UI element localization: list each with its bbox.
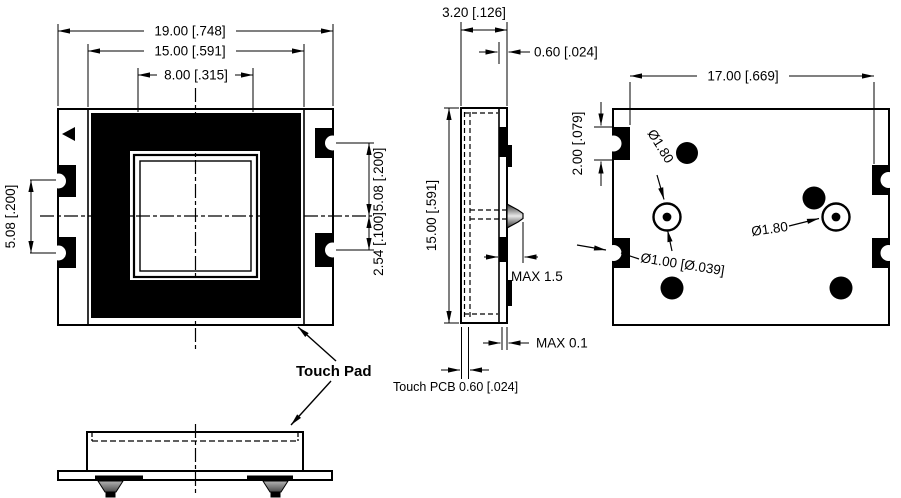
castellation-notch [881,172,897,188]
front-right-pitch-upper-label: 5.08 [.200] [371,148,386,212]
side-bump-max-label: MAX 1.5 [511,269,563,284]
plated-hole-center [663,213,672,222]
back-solder-dot [803,187,826,210]
profile-pad-bar [95,476,143,482]
back-solder-dot [676,142,698,164]
back-solder-dot [830,277,853,300]
touch-pad-leader-down [291,381,331,425]
technical-drawing-touch-pad: 19.00 [.748] 15.00 [.591] 8.00 [.315] 5.… [0,0,901,498]
front-view: 19.00 [.748] 15.00 [.591] 8.00 [.315] 5.… [3,23,386,425]
front-body-width-label: 15.00 [.591] [154,44,225,59]
back-width-label: 17.00 [.669] [707,69,778,84]
front-left-pitch-label: 5.08 [.200] [3,185,18,249]
drawing-canvas: 19.00 [.748] 15.00 [.591] 8.00 [.315] 5.… [0,0,901,498]
back-solder-dot [661,277,684,300]
solder-foot [263,481,288,492]
profile-pad-bar [247,476,293,482]
castellation-notch [606,136,622,152]
side-pad-nub [507,145,512,167]
front-window-width-label: 8.00 [.315] [164,68,228,83]
touch-pad-label: Touch Pad [296,363,372,380]
solder-foot-tip [271,492,281,498]
solder-foot [98,481,123,492]
side-touch-pcb-label: Touch PCB 0.60 [.024] [393,380,518,394]
side-protrusion-max-label: MAX 0.1 [536,336,588,351]
touch-pad-leader-up [298,327,336,361]
bottom-profile-view [58,424,332,498]
side-pad-strip [499,237,507,262]
side-cone-bump [507,204,523,228]
side-pcb-top-label: 0.60 [.024] [534,45,598,60]
back-view: 17.00 [.669] 2.00 [.079] Ø1.80 Ø1.00 [Ø.… [570,68,897,325]
solder-foot-tip [106,492,116,498]
side-pad-strip [499,127,507,157]
castellation-notch [606,245,622,261]
castellation-notch [51,174,66,189]
side-height-label: 15.00 [.591] [424,180,439,251]
side-depth-label: 3.20 [.126] [442,5,506,20]
front-right-pitch-lower-label: 2.54 [.100] [371,212,386,276]
castellation-leader-arrow [577,245,606,250]
side-view: 3.20 [.126] 0.60 [.024] 15.00 [.591] MAX… [393,5,598,394]
back-pad-height-label: 2.00 [.079] [570,112,585,176]
castellation-notch [881,245,897,261]
front-outer-width-label: 19.00 [.748] [154,24,225,39]
plated-hole-center [832,213,841,222]
